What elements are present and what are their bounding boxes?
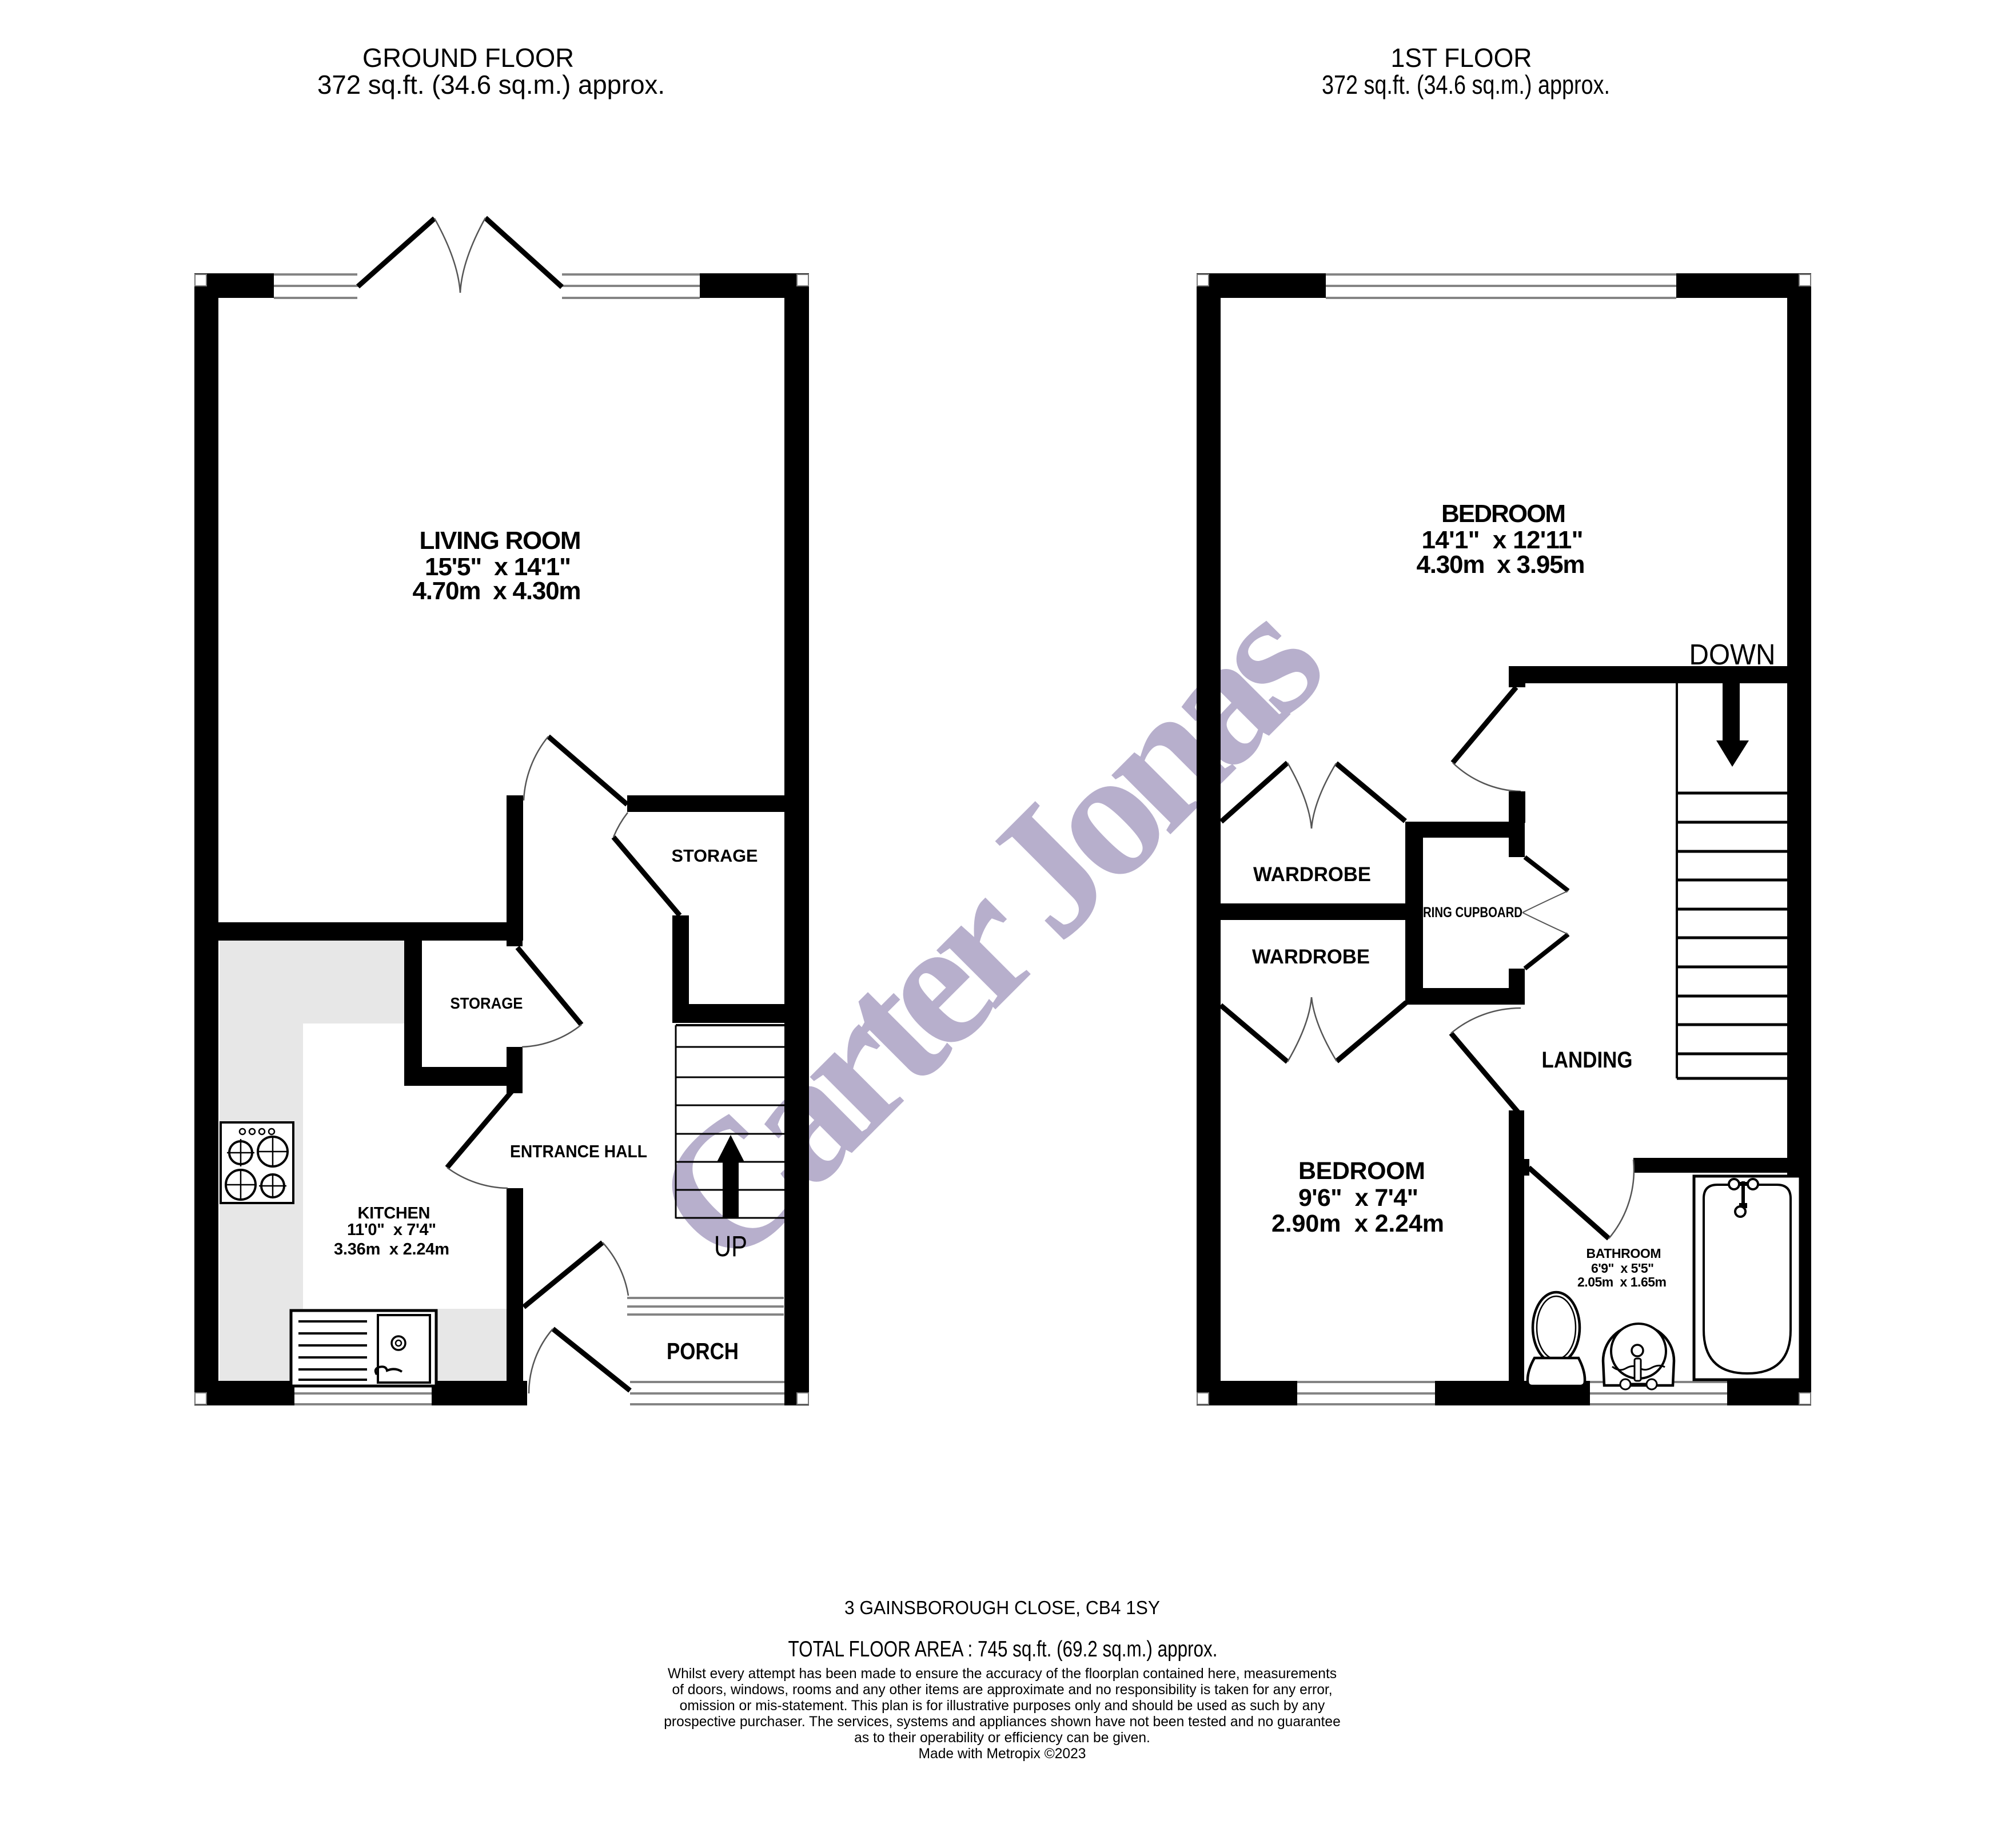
svg-text:Whilst every attempt has been: Whilst every attempt has been made to en…: [668, 1666, 1337, 1682]
svg-text:4.70m x 4.30m: 4.70m x 4.30m: [413, 577, 581, 605]
svg-text:WARDROBE: WARDROBE: [1252, 946, 1370, 968]
svg-text:9'6" x 7'4": 9'6" x 7'4": [1298, 1184, 1418, 1212]
svg-text:DOWN: DOWN: [1689, 638, 1776, 671]
svg-text:BEDROOM: BEDROOM: [1298, 1157, 1425, 1185]
svg-text:3.36m x 2.24m: 3.36m x 2.24m: [334, 1240, 449, 1258]
svg-text:Made with Metropix ©2023: Made with Metropix ©2023: [919, 1746, 1086, 1762]
svg-text:TOTAL FLOOR AREA : 745 sq.ft.: TOTAL FLOOR AREA : 745 sq.ft. (69.2 sq.m…: [788, 1637, 1218, 1662]
svg-text:BEDROOM: BEDROOM: [1441, 500, 1566, 528]
svg-text:372 sq.ft. (34.6 sq.m.) approx: 372 sq.ft. (34.6 sq.m.) approx.: [1322, 70, 1610, 99]
svg-text:omission or mis-statement. Thi: omission or mis-statement. This plan is …: [680, 1698, 1325, 1714]
svg-text:372 sq.ft. (34.6 sq.m.) approx: 372 sq.ft. (34.6 sq.m.) approx.: [317, 70, 665, 99]
svg-text:1ST FLOOR: 1ST FLOOR: [1391, 43, 1532, 73]
svg-text:LANDING: LANDING: [1542, 1048, 1633, 1073]
svg-text:as to their operability or eff: as to their operability or efficiency ca…: [854, 1730, 1150, 1746]
svg-text:11'0" x 7'4": 11'0" x 7'4": [347, 1221, 436, 1239]
svg-text:KITCHEN: KITCHEN: [358, 1204, 431, 1222]
svg-text:STORAGE: STORAGE: [672, 846, 758, 866]
svg-text:14'1" x 12'11": 14'1" x 12'11": [1422, 526, 1584, 554]
svg-text:4.30m x 3.95m: 4.30m x 3.95m: [1417, 551, 1585, 579]
svg-text:LIVING ROOM: LIVING ROOM: [420, 527, 581, 555]
svg-text:RING CUPBOARD: RING CUPBOARD: [1423, 905, 1522, 921]
svg-text:6'9" x 5'5": 6'9" x 5'5": [1591, 1261, 1654, 1276]
svg-text:of doors, windows, rooms and a: of doors, windows, rooms and any other i…: [672, 1682, 1332, 1698]
svg-text:2.05m x 1.65m: 2.05m x 1.65m: [1577, 1275, 1667, 1289]
svg-text:prospective purchaser. The ser: prospective purchaser. The services, sys…: [664, 1714, 1341, 1730]
svg-text:BATHROOM: BATHROOM: [1587, 1246, 1661, 1261]
svg-text:WARDROBE: WARDROBE: [1253, 863, 1371, 886]
svg-text:UP: UP: [714, 1230, 747, 1262]
svg-text:GROUND FLOOR: GROUND FLOOR: [362, 43, 574, 73]
svg-text:2.90m x 2.24m: 2.90m x 2.24m: [1271, 1210, 1444, 1237]
svg-text:ENTRANCE HALL: ENTRANCE HALL: [510, 1141, 647, 1161]
svg-text:STORAGE: STORAGE: [451, 994, 523, 1012]
svg-text:PORCH: PORCH: [667, 1338, 739, 1364]
svg-text:3 GAINSBOROUGH CLOSE, CB4 1SY: 3 GAINSBOROUGH CLOSE, CB4 1SY: [844, 1597, 1160, 1618]
